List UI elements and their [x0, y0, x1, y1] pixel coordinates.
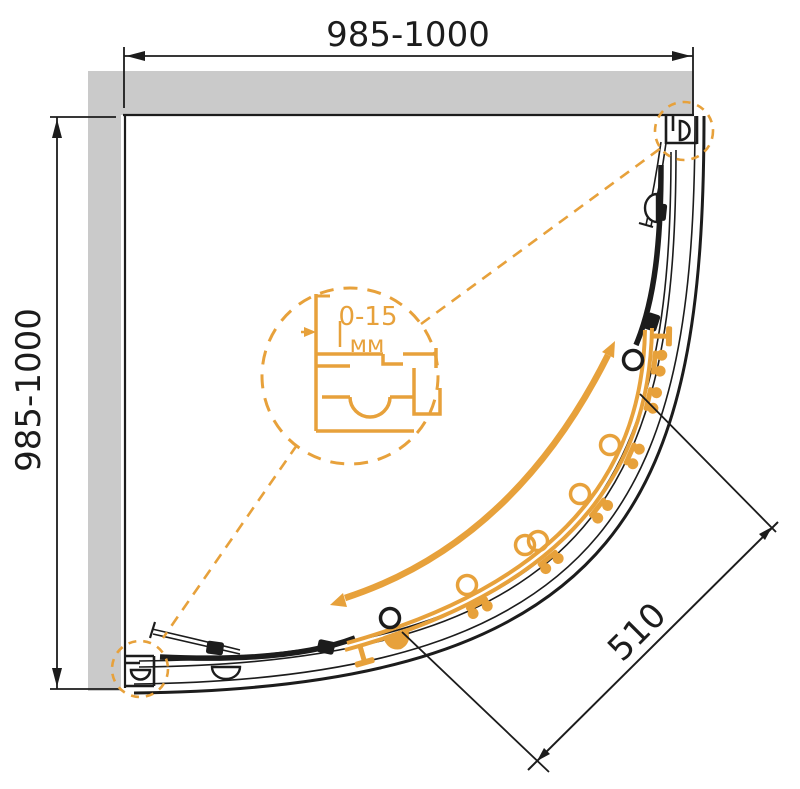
door-knob-black [381, 609, 400, 628]
callout-leader-top [421, 148, 661, 324]
width-dimension-label: 985-1000 [326, 15, 490, 55]
roller-housing-bottom-left [212, 667, 240, 679]
door-handle-ring [458, 576, 477, 595]
sliding-door-outer-arc [345, 328, 652, 650]
door-handle-ring [529, 532, 548, 551]
panel-clip [206, 640, 225, 655]
profile-roller-detail [131, 670, 150, 680]
height-arrow-top [52, 119, 62, 138]
opening-dimension-label: 510 [600, 595, 674, 669]
wall-top [88, 71, 694, 115]
rail-inner-arc [139, 152, 671, 661]
door-handle-ring [601, 436, 620, 455]
wall-profile-top-right [666, 116, 697, 144]
width-arrow-right [672, 51, 691, 61]
technical-drawing-page: 985-1000 985-1000 [0, 0, 800, 789]
door-handle-ring [571, 485, 590, 504]
door-knob-black [624, 351, 643, 370]
enclosure-plan-svg: 985-1000 985-1000 [0, 0, 800, 789]
height-dimension-label: 985-1000 [9, 308, 49, 472]
wall-left [88, 71, 121, 691]
rail-outer-arc [139, 150, 676, 667]
height-arrow-bottom [52, 668, 62, 687]
callout-leader-bottom [163, 445, 297, 638]
sliding-door-inner-arc [347, 330, 645, 643]
detail-range-label: 0-15 [338, 302, 397, 332]
opening-dimension-line [528, 522, 778, 770]
profile-roller-detail [680, 121, 690, 140]
detail-dim-arrow [304, 327, 316, 337]
detail-profile-section [316, 348, 440, 417]
detail-bubble: 0-15 мм [301, 294, 440, 431]
door-handle-ring [516, 536, 535, 555]
slide-direction-arrow [330, 341, 615, 607]
tray-outer-rim-arc [134, 116, 704, 693]
width-arrow-left [126, 51, 145, 61]
